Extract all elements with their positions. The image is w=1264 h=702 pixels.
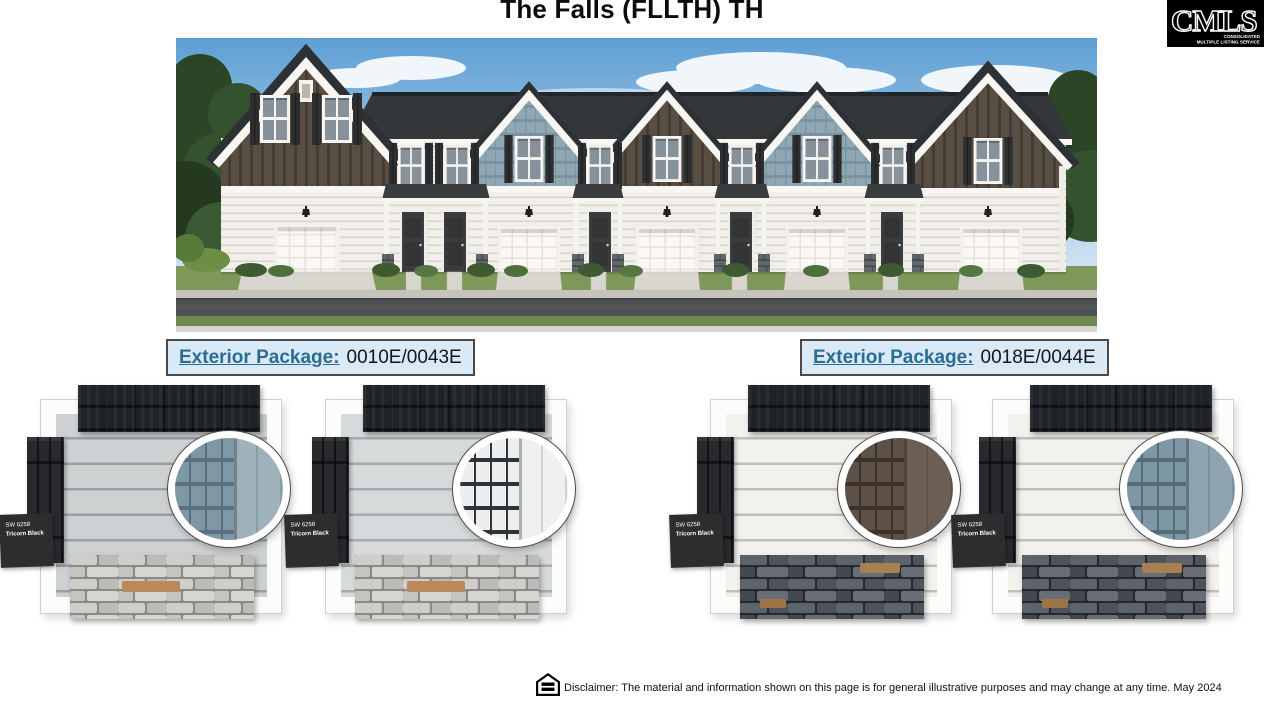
exterior-package-2-label: Exterior Package: xyxy=(813,347,974,369)
paint-chip-name: Tricorn Black xyxy=(676,529,723,540)
shingle-swatch xyxy=(78,385,260,432)
shake-accent-swatch xyxy=(845,438,904,540)
exterior-package-1-label: Exterior Package: xyxy=(179,347,340,369)
shake-accent-swatch xyxy=(175,438,234,540)
swatch-panel-1: SW 6258 Tricorn Black xyxy=(0,385,300,625)
swatch-panel-2: SW 6258 Tricorn Black xyxy=(285,385,585,625)
shingle-swatch xyxy=(363,385,545,432)
paint-chip-sw6258: SW 6258 Tricorn Black xyxy=(669,513,724,568)
cmls-logo-text: CMLS xyxy=(1171,3,1257,38)
cmls-logo-subtext-1: CONSOLIDATED xyxy=(1224,34,1261,39)
page-title: The Falls (FLLTH) TH xyxy=(0,0,1264,25)
accent-magnifier xyxy=(1120,431,1242,547)
equal-housing-icon xyxy=(535,673,561,697)
swatch-panel-3: SW 6258 Tricorn Black xyxy=(670,385,970,625)
shake-accent-swatch xyxy=(460,438,519,540)
exterior-package-2-code: 0018E/0044E xyxy=(981,347,1096,369)
accent-magnifier xyxy=(168,431,290,547)
exterior-package-2: Exterior Package: 0018E/0044E xyxy=(800,339,1109,376)
paint-chip-name: Tricorn Black xyxy=(958,529,1005,540)
paint-chip-name: Tricorn Black xyxy=(6,529,53,540)
disclaimer-text: Disclaimer: The material and information… xyxy=(564,682,1222,697)
paint-chip-sw6258: SW 6258 Tricorn Black xyxy=(284,513,339,568)
corner-trim-swatch xyxy=(1186,438,1235,540)
accent-magnifier xyxy=(453,431,575,547)
paint-chip-sw6258: SW 6258 Tricorn Black xyxy=(951,513,1006,568)
paint-chip-name: Tricorn Black xyxy=(291,529,338,540)
shingle-swatch xyxy=(1030,385,1212,432)
exterior-package-1-code: 0010E/0043E xyxy=(347,347,462,369)
corner-trim-swatch xyxy=(234,438,283,540)
cmls-logo: CMLS CONSOLIDATED MULTIPLE LISTING SERVI… xyxy=(1167,0,1264,47)
stone-swatch xyxy=(1022,555,1206,619)
shingle-swatch xyxy=(748,385,930,432)
townhome-rendering xyxy=(176,38,1097,332)
flyer-page: The Falls (FLLTH) TH CMLS CONSOLIDATED M… xyxy=(0,0,1264,702)
stone-swatch xyxy=(355,555,539,619)
shake-accent-swatch xyxy=(1127,438,1186,540)
stone-swatch xyxy=(70,555,254,619)
corner-trim-swatch xyxy=(519,438,568,540)
stone-swatch xyxy=(740,555,924,619)
cmls-logo-subtext-2: MULTIPLE LISTING SERVICE xyxy=(1197,40,1260,45)
accent-magnifier xyxy=(838,431,960,547)
corner-trim-swatch xyxy=(904,438,953,540)
swatch-panel-4: SW 6258 Tricorn Black xyxy=(952,385,1252,625)
paint-chip-sw6258: SW 6258 Tricorn Black xyxy=(0,513,54,568)
footer: Disclaimer: The material and information… xyxy=(535,673,1222,697)
exterior-package-1: Exterior Package: 0010E/0043E xyxy=(166,339,475,376)
